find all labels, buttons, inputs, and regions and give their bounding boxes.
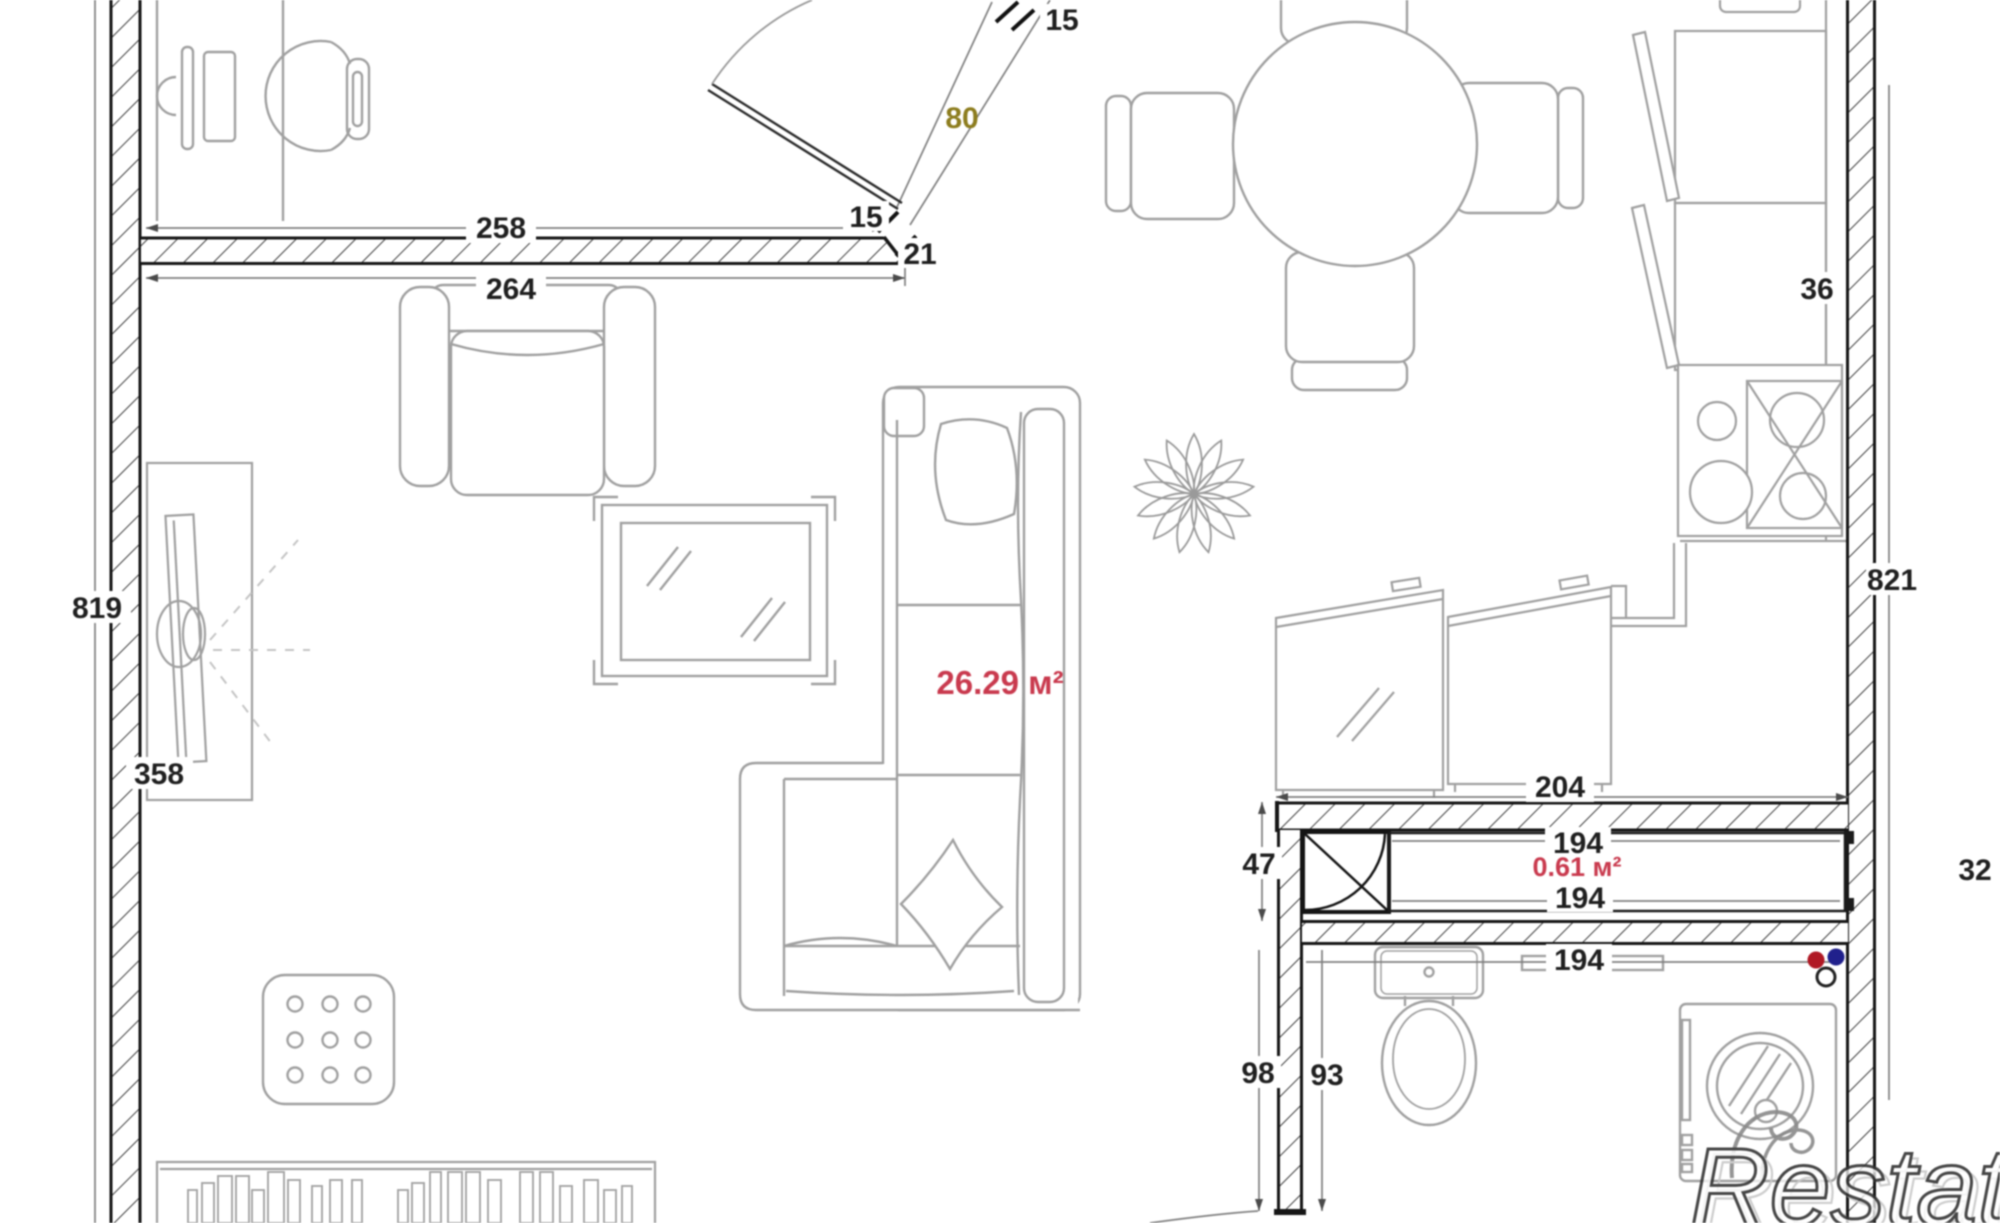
- svg-text:204: 204: [1535, 771, 1585, 804]
- svg-text:15: 15: [849, 201, 882, 234]
- svg-text:80: 80: [945, 102, 978, 135]
- svg-text:36: 36: [1800, 273, 1833, 306]
- svg-text:821: 821: [1867, 564, 1917, 597]
- svg-text:15: 15: [1045, 4, 1078, 37]
- svg-text:Restate: Restate: [1690, 1126, 2000, 1223]
- svg-text:264: 264: [486, 273, 536, 306]
- svg-text:93: 93: [1310, 1059, 1343, 1092]
- svg-text:0.61 м²: 0.61 м²: [1532, 852, 1621, 882]
- svg-text:194: 194: [1554, 944, 1604, 977]
- svg-text:98: 98: [1241, 1057, 1274, 1090]
- svg-text:47: 47: [1242, 848, 1275, 881]
- svg-text:26.29 м²: 26.29 м²: [936, 664, 1063, 701]
- svg-text:194: 194: [1555, 882, 1605, 915]
- svg-text:358: 358: [134, 758, 184, 791]
- svg-text:258: 258: [476, 212, 526, 245]
- svg-text:21: 21: [903, 238, 936, 271]
- svg-text:819: 819: [72, 592, 122, 625]
- svg-text:32: 32: [1958, 854, 1991, 887]
